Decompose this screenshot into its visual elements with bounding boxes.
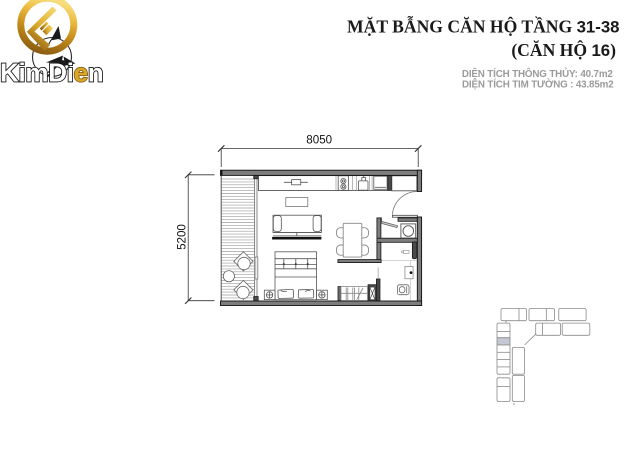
svg-text:MẶT BẪNG CĂN HỘ TẦNG 31-38: MẶT BẪNG CĂN HỘ TẦNG 31-38 (347, 16, 619, 36)
svg-text:KimDien: KimDien (0, 58, 103, 88)
svg-text:(CĂN HỘ 16): (CĂN HỘ 16) (511, 40, 616, 60)
svg-text:DIỆN TÍCH THÔNG THỦY: 40.7m2: DIỆN TÍCH THÔNG THỦY: 40.7m2 (462, 68, 613, 80)
svg-text:8050: 8050 (306, 134, 332, 147)
svg-text:DIỆN TÍCH TIM TƯỜNG : 43.85m2: DIỆN TÍCH TIM TƯỜNG : 43.85m2 (462, 78, 614, 90)
svg-text:5200: 5200 (176, 224, 189, 250)
